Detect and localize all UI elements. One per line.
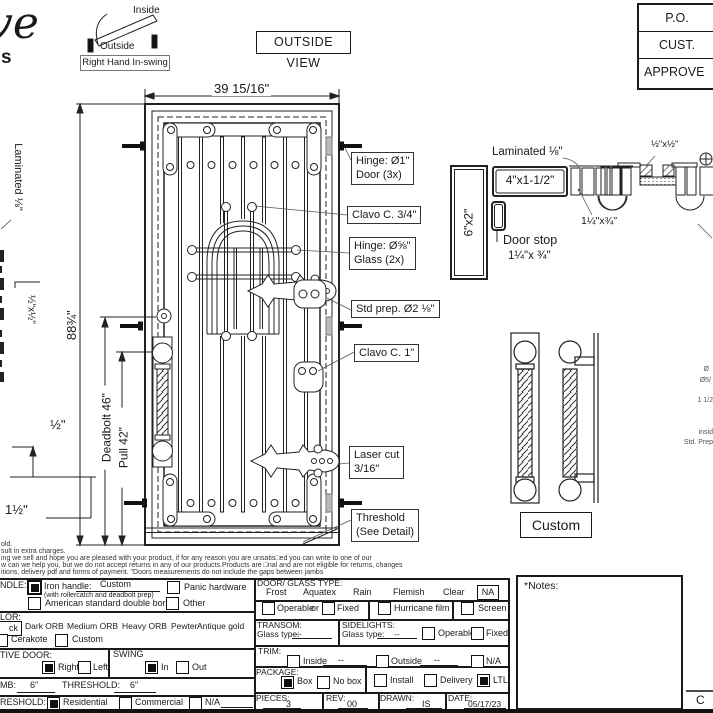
sidelight-operable-label: Operable <box>438 629 475 639</box>
box-label: Box <box>297 677 313 687</box>
nobox-label: No box <box>333 677 362 687</box>
sidelight-fixed-label: Fixed <box>486 629 508 639</box>
color-opt-antique-gold[interactable]: Antique gold <box>197 622 244 631</box>
or-label: or <box>311 604 319 614</box>
out-label: Out <box>192 663 207 673</box>
hurricane-label: Hurricane film <box>394 604 450 614</box>
annotation-hinge-glass: Hinge: Ø⅝" Glass (2x) <box>349 237 416 270</box>
threshold-size-label: THRESHOLD: <box>62 681 120 691</box>
checkbox-trim-outside[interactable] <box>376 655 389 668</box>
annotation-line: Door (3x) <box>356 168 409 182</box>
commercial-label: Commercial <box>135 698 183 708</box>
checkbox-iron-handle[interactable] <box>27 580 42 595</box>
checkbox-hurricane[interactable] <box>378 602 391 615</box>
checkbox-fixed[interactable] <box>322 602 335 615</box>
annotation-line: Hinge: Ø⅝" <box>354 239 411 253</box>
checkbox-box[interactable] <box>281 676 294 689</box>
trim-outside-label: Outside <box>391 657 422 667</box>
glass-opt-frost[interactable]: Frost <box>266 588 287 598</box>
pieces-label: PIECES: <box>256 694 290 703</box>
drawn-label: DRAWN: <box>380 694 414 703</box>
color-opt-dark-orb[interactable]: Dark ORB <box>25 622 64 631</box>
glass-opt-flemish[interactable]: Flemish <box>393 588 425 598</box>
annotation-laser-cut: Laser cut 3/16" <box>349 446 404 479</box>
checkbox-nobox[interactable] <box>317 676 330 689</box>
install-label: Install <box>390 676 414 686</box>
annotation-line: Laser cut <box>354 448 399 462</box>
door-spec-sheet: { "brand": {"script": "ve", "sub": "s"},… <box>0 0 713 713</box>
rev-label: REV: <box>326 694 346 703</box>
checkbox-commercial[interactable] <box>119 697 132 710</box>
checkbox-american-boring[interactable] <box>28 597 41 610</box>
custom-color-label: Custom <box>72 635 103 645</box>
annotation-line: Hinge: Ø1" <box>356 154 409 168</box>
checkbox-cerakote[interactable] <box>0 634 8 647</box>
glass-opt-clear[interactable]: Clear <box>443 588 465 598</box>
annotation-line: Clavo C. 3/4" <box>352 208 416 222</box>
checkbox-sidelight-operable[interactable] <box>422 627 435 640</box>
glass-opt-rain[interactable]: Rain <box>353 588 372 598</box>
checkbox-ltl[interactable] <box>477 674 490 687</box>
trim-na-label: N/A <box>486 657 501 667</box>
annotation-line: 3/16" <box>354 462 399 476</box>
na-bottom-label: N/A <box>205 698 220 708</box>
checkbox-screen[interactable] <box>461 602 474 615</box>
left-label: Left <box>93 663 108 673</box>
annotation-line: Clavo C. 1" <box>359 346 414 360</box>
checkbox-delivery[interactable] <box>424 674 437 687</box>
color-opt-pewter[interactable]: Pewter <box>171 622 197 631</box>
glass-opt-aquatex[interactable]: Aquatex <box>303 588 336 598</box>
checkbox-other-handle[interactable] <box>166 597 179 610</box>
notes-box[interactable]: *Notes: <box>516 575 683 710</box>
checkbox-operable[interactable] <box>262 602 275 615</box>
checkbox-install[interactable] <box>374 674 387 687</box>
checkbox-residential[interactable] <box>47 697 60 710</box>
checkbox-na-bottom[interactable] <box>189 697 202 710</box>
jamb-row-label: MB: <box>0 681 16 691</box>
residential-label: Residential <box>63 698 108 708</box>
annotation-line: Std prep. Ø2 ⅛" <box>356 302 435 316</box>
checkbox-panic-hardware[interactable] <box>167 581 180 594</box>
checkbox-custom-color[interactable] <box>55 634 68 647</box>
threshold-size-value[interactable]: 6" <box>130 681 138 691</box>
delivery-label: Delivery <box>440 676 473 686</box>
checkbox-in[interactable] <box>145 661 158 674</box>
ltl-label: LTL <box>493 676 508 686</box>
annotation-line: Glass (2x) <box>354 253 411 267</box>
active-door-label: TIVE DOOR: <box>0 651 52 661</box>
annotation-std-prep: Std prep. Ø2 ⅛" <box>351 300 440 318</box>
operable-label: Operable <box>277 604 314 614</box>
panic-hardware-label: Panic hardware <box>184 583 247 593</box>
bottom-row-label: RESHOLD: <box>0 698 46 708</box>
annotation-threshold: Threshold (See Detail) <box>351 509 419 542</box>
handle-row-label: NDLE: <box>0 581 27 591</box>
checkbox-left[interactable] <box>78 661 91 674</box>
swing-section-label: SWING <box>113 650 144 660</box>
cerakote-label: Cerakote <box>11 635 48 645</box>
glass-opt-na-selected[interactable]: NA <box>477 585 499 600</box>
notes-label: *Notes: <box>524 581 558 593</box>
screen-label: Screen <box>478 604 507 614</box>
checkbox-sidelight-fixed[interactable] <box>471 627 484 640</box>
jamb-value[interactable]: 6" <box>30 681 38 691</box>
annotation-clavo-1: Clavo C. 1" <box>354 344 419 362</box>
annotation-hinge-door: Hinge: Ø1" Door (3x) <box>351 152 414 185</box>
checkbox-out[interactable] <box>176 661 189 674</box>
annotation-line: (See Detail) <box>356 525 414 539</box>
color-opt-heavy-orb[interactable]: Heavy ORB <box>122 622 167 631</box>
annotation-line: Threshold <box>356 511 414 525</box>
corner-fragment-text: C <box>696 694 705 707</box>
american-boring-label: American standard double boring <box>45 599 178 609</box>
checkbox-trim-na[interactable] <box>471 655 484 668</box>
other-handle-label: Other <box>183 599 206 609</box>
annotation-clavo-34: Clavo C. 3/4" <box>347 206 421 224</box>
fixed-label: Fixed <box>337 604 359 614</box>
checkbox-right[interactable] <box>42 661 55 674</box>
in-label: In <box>161 663 169 673</box>
color-opt-medium-orb[interactable]: Medium ORB <box>67 622 118 631</box>
right-label: Right <box>58 663 79 673</box>
iron-handle-value[interactable]: Custom <box>100 580 131 590</box>
trim-label: TRIM: <box>258 647 281 656</box>
